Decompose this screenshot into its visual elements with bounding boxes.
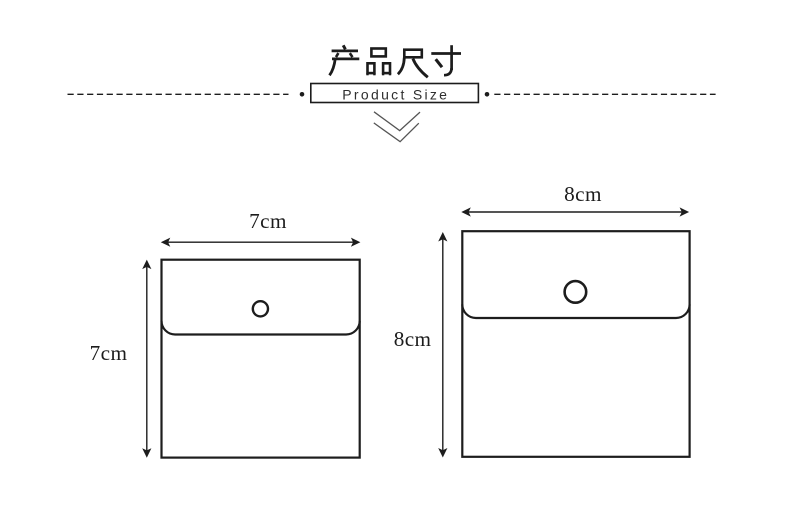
svg-text:Product Size: Product Size	[342, 86, 449, 102]
svg-text:7cm: 7cm	[90, 341, 128, 365]
svg-text:8cm: 8cm	[564, 182, 602, 206]
svg-text:7cm: 7cm	[249, 209, 287, 233]
svg-text:8cm: 8cm	[394, 327, 432, 351]
